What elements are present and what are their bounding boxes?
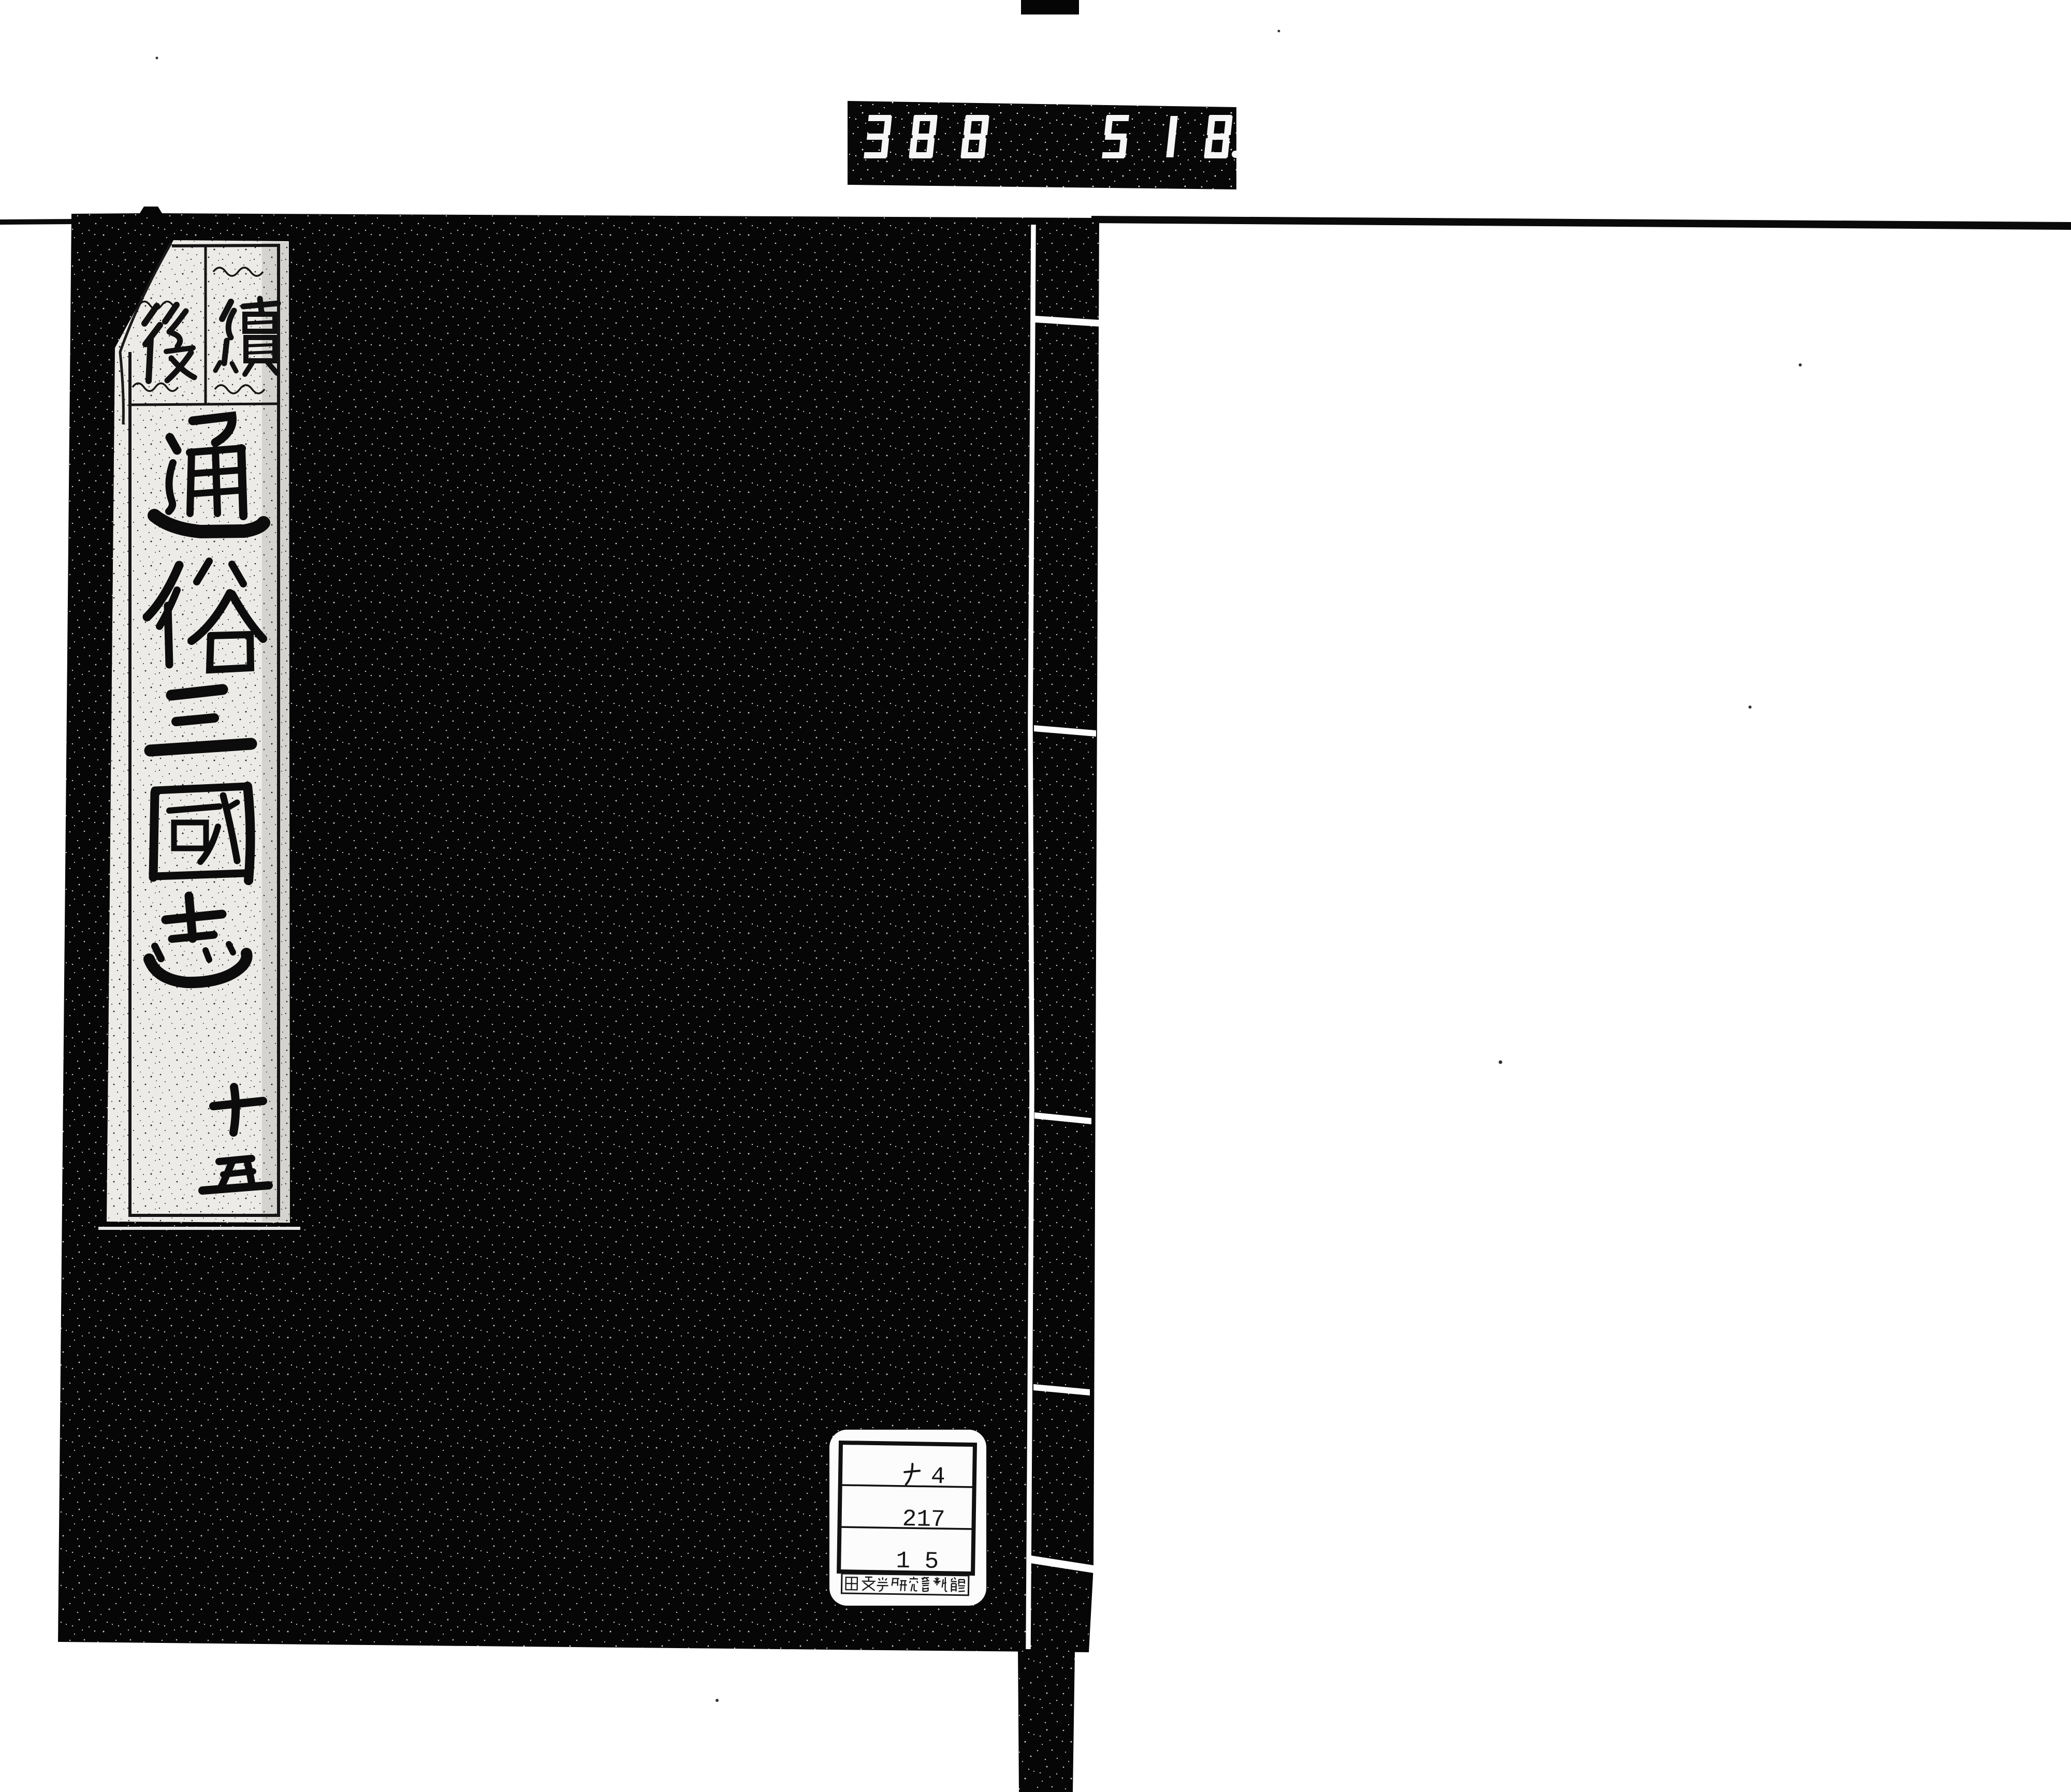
svg-text:217: 217 [902, 1506, 945, 1533]
svg-text:4: 4 [931, 1463, 945, 1490]
svg-text:1 5: 1 5 [896, 1548, 939, 1575]
